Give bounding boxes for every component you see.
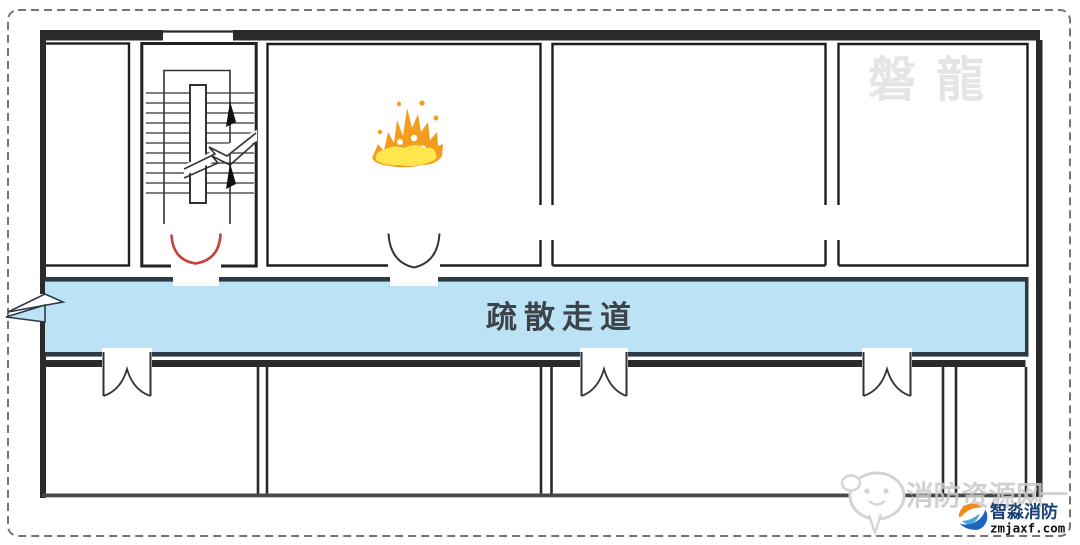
corridor-bottom-edge <box>627 352 863 357</box>
partition-wall <box>258 367 267 494</box>
brand-name: 智淼消防 <box>990 502 1058 522</box>
brand-domain: zmjaxf.com <box>990 521 1066 536</box>
bottom-rooms-top-wall <box>912 360 1026 367</box>
corridor-bottom-edge <box>911 352 1029 357</box>
room-top-middle-outline <box>553 44 826 266</box>
room-top-left <box>45 44 130 266</box>
door-threshold <box>102 348 152 397</box>
door-leaf <box>414 234 440 268</box>
door-threshold <box>173 277 219 286</box>
door-threshold <box>862 348 912 397</box>
brand-logo: 智淼消防 zmjaxf.com <box>957 502 1065 536</box>
evacuation-floor-plan: 疏散走道 磐龍 <box>0 0 1080 545</box>
corridor-bottom-edge <box>151 352 581 357</box>
top-wall <box>233 30 1040 41</box>
door-threshold <box>580 348 628 397</box>
double-swing-door-symbol <box>580 348 628 397</box>
partition-wall <box>943 367 956 494</box>
corridor-bottom-edge <box>45 352 103 357</box>
door-threshold <box>390 277 438 286</box>
door-leaf <box>389 234 415 268</box>
bottom-rooms-top-wall <box>45 360 102 367</box>
watermark-top-right: 磐龍 <box>868 54 1004 107</box>
corridor-top-edge <box>219 277 390 282</box>
double-swing-door-symbol <box>862 348 912 397</box>
corridor-top-edge <box>438 277 1029 282</box>
corridor-top-edge <box>45 277 173 282</box>
evacuation-corridor: 疏散走道 <box>6 277 1029 357</box>
stairwell <box>142 44 257 267</box>
stair-handrail <box>190 85 206 203</box>
top-wall <box>40 30 163 41</box>
left-wall <box>40 40 46 294</box>
double-swing-door-symbol <box>102 348 152 397</box>
right-wall <box>1036 40 1043 497</box>
chat-bubble-icon <box>842 473 904 533</box>
fire-icon <box>372 100 443 167</box>
corridor-right-edge <box>1025 277 1029 357</box>
partition-wall <box>541 367 552 494</box>
bottom-rooms-top-wall <box>152 360 580 367</box>
double-swing-door-symbol <box>389 234 440 287</box>
bottom-rooms-top-wall <box>628 360 862 367</box>
corridor-label: 疏散走道 <box>486 300 638 335</box>
floor-plan-drawing: 疏散走道 磐龍 <box>0 0 1080 545</box>
